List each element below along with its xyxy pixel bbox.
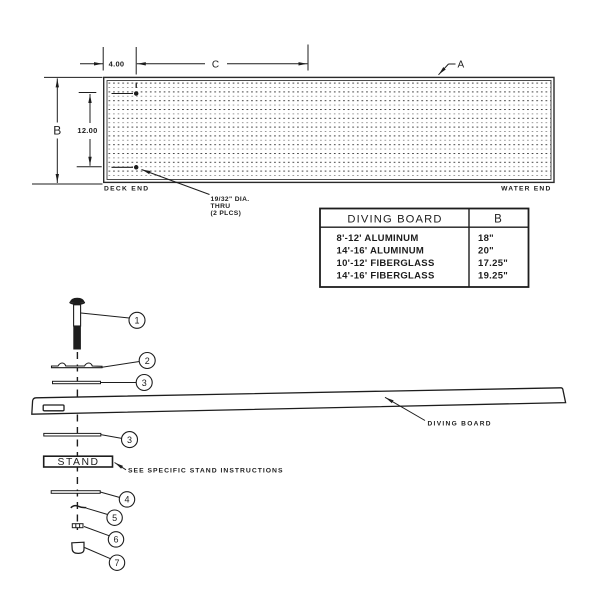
svg-text:A: A [458,60,465,71]
svg-text:19/32" DIA.: 19/32" DIA. [211,196,250,203]
svg-text:4.00: 4.00 [109,59,125,68]
svg-text:10'-12' FIBERGLASS: 10'-12' FIBERGLASS [337,258,435,269]
svg-text:B: B [494,214,502,226]
svg-text:12.00: 12.00 [77,126,97,135]
svg-text:8'-12' ALUMINUM: 8'-12' ALUMINUM [337,233,419,244]
svg-text:18": 18" [478,233,494,244]
svg-text:17.25": 17.25" [478,258,508,269]
svg-text:SEE SPECIFIC STAND INSTRUCTION: SEE SPECIFIC STAND INSTRUCTIONS [128,467,284,474]
svg-text:19.25": 19.25" [478,271,508,282]
svg-text:DIVING BOARD: DIVING BOARD [428,421,492,428]
svg-text:2: 2 [145,356,150,366]
svg-text:C: C [212,60,219,71]
svg-text:3: 3 [127,435,132,445]
svg-text:DECK END: DECK END [104,186,149,193]
svg-text:3: 3 [142,378,147,388]
svg-text:DIVING BOARD: DIVING BOARD [347,214,442,226]
svg-text:14'-16' FIBERGLASS: 14'-16' FIBERGLASS [337,271,435,282]
svg-text:20": 20" [478,246,494,257]
svg-text:4: 4 [124,495,129,505]
svg-text:5: 5 [112,513,117,523]
svg-text:THRU: THRU [211,203,231,210]
svg-text:6: 6 [113,535,118,545]
svg-text:14'-16' ALUMINUM: 14'-16' ALUMINUM [337,246,425,257]
svg-text:(2 PLCS): (2 PLCS) [211,210,242,217]
svg-text:WATER END: WATER END [501,186,551,193]
svg-text:7: 7 [114,558,119,568]
svg-text:1: 1 [134,316,139,326]
svg-text:STAND: STAND [58,457,100,468]
svg-text:B: B [53,124,61,138]
